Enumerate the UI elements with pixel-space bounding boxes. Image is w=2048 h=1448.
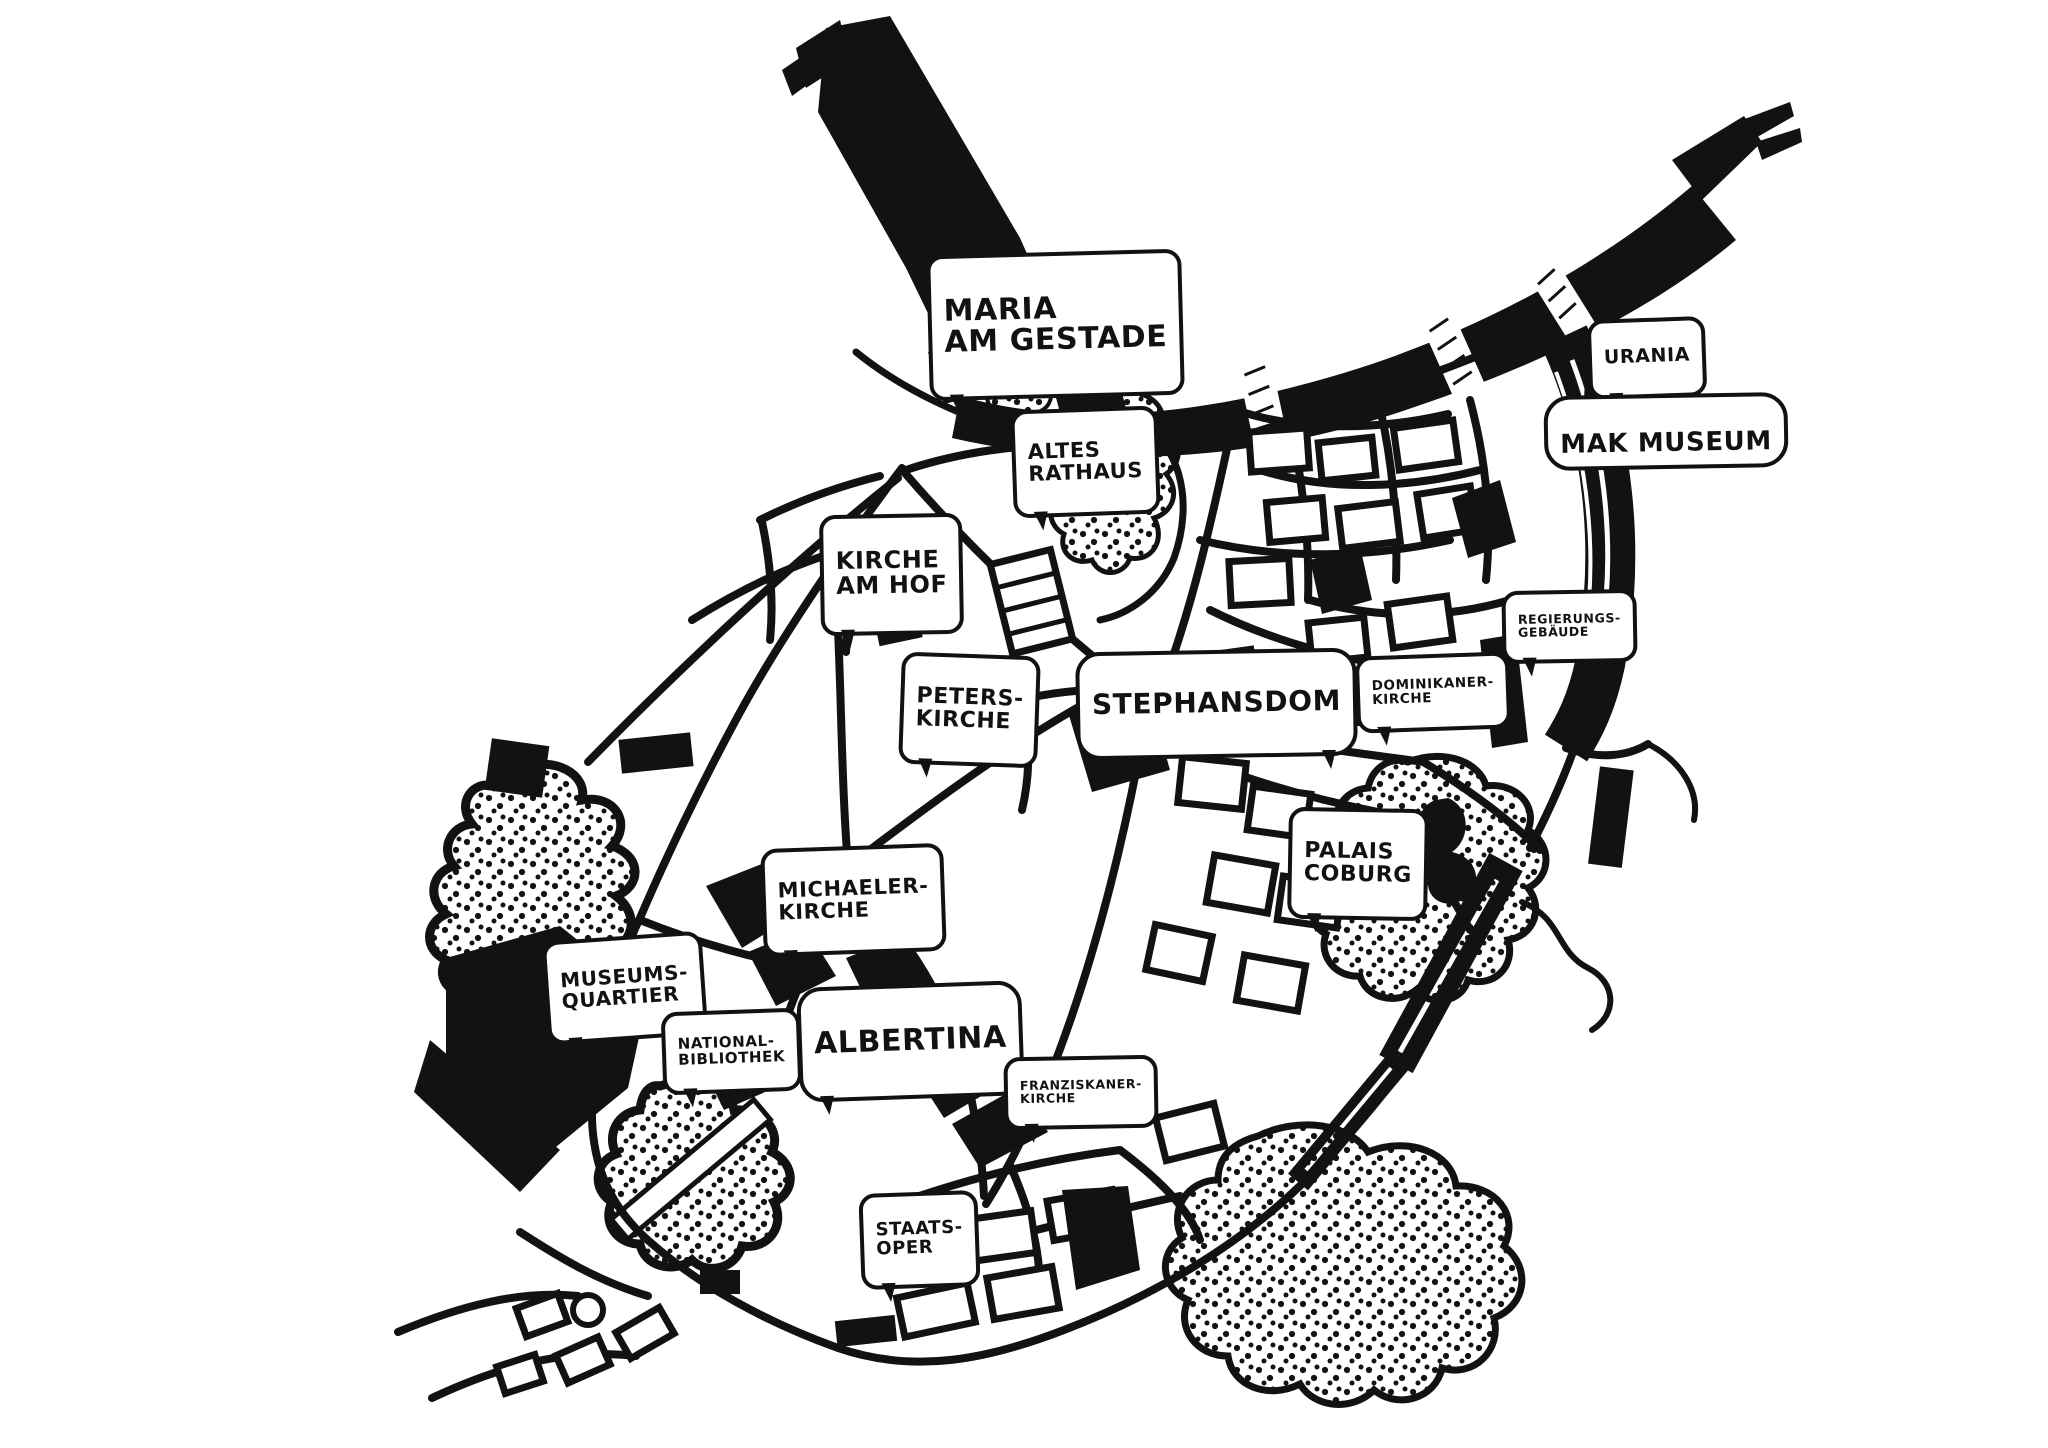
map-label-text: Dominikaner- kirche [1371,674,1494,708]
bubble-tail [1034,512,1049,531]
map-label-text: Albertina [813,1019,1007,1061]
map-label-text: Peters- kirche [915,683,1024,734]
map-label-maria-am-gestade: Maria am Gestade [926,249,1185,402]
map-label-text: Michaeler- kirche [777,873,929,924]
map-label-text: Maria am Gestade [943,290,1168,359]
map-label-text: Stephansdom [1092,684,1342,721]
map-label-peterskirche: Peters- kirche [898,652,1041,769]
bubble-tail [1377,726,1392,745]
map-label-mak-museum: MAK Museum [1543,392,1788,471]
map-label-text: Staats- oper [875,1216,963,1259]
bubble-tail [784,950,799,969]
map-label-altes-rathaus: Altes Rathaus [1010,405,1160,518]
map-label-text: National- bibliothek [677,1031,785,1068]
bubble-tail [950,394,964,413]
map-label-palais-coburg: Palais Coburg [1287,807,1429,922]
bubble-tail [1523,657,1537,676]
map-label-urania: Urania [1587,316,1708,400]
map-label-text: Franziskaner- kirche [1020,1076,1142,1106]
map-label-michaelerkirche: Michaeler- kirche [760,843,947,958]
bubble-tail [841,629,855,648]
map-label-stephansdom: Stephansdom [1075,648,1358,761]
map-label-text: Palais Coburg [1304,838,1413,888]
map-label-text: Kirche am Hof [836,545,948,600]
map-label-staatsoper: Staats- oper [858,1190,980,1290]
bubble-tail [918,759,933,778]
bubble-tail [820,1095,835,1114]
fountain-circle [573,1295,603,1325]
map-label-nationalbibliothek: National- bibliothek [661,1008,803,1096]
bubble-tail [1322,750,1336,769]
bubble-tail [568,1037,583,1057]
bubble-tail [683,1088,698,1107]
map-label-text: MAK Museum [1560,426,1772,460]
map-label-text: Museums- quartier [559,960,688,1014]
map-canvas: Maria am Gestade Altes Rathaus Urania MA… [0,0,2048,1448]
bubble-tail [1025,1123,1039,1142]
map-label-kirche-am-hof: Kirche am Hof [819,513,964,636]
map-label-dominikanerkirche: Dominikaner- kirche [1355,651,1512,733]
map-label-albertina: Albertina [796,980,1025,1102]
bubble-tail [881,1282,896,1301]
map-label-regierungsgebaeude: Regierungs- gebäude [1501,589,1637,664]
bubble-tail [1307,913,1321,932]
map-label-text: Regierungs- gebäude [1518,610,1621,640]
map-label-franziskanerkirche: Franziskaner- kirche [1003,1055,1158,1130]
ladder-block [990,550,1072,654]
map-label-text: Urania [1604,343,1691,368]
map-label-text: Altes Rathaus [1027,438,1143,487]
